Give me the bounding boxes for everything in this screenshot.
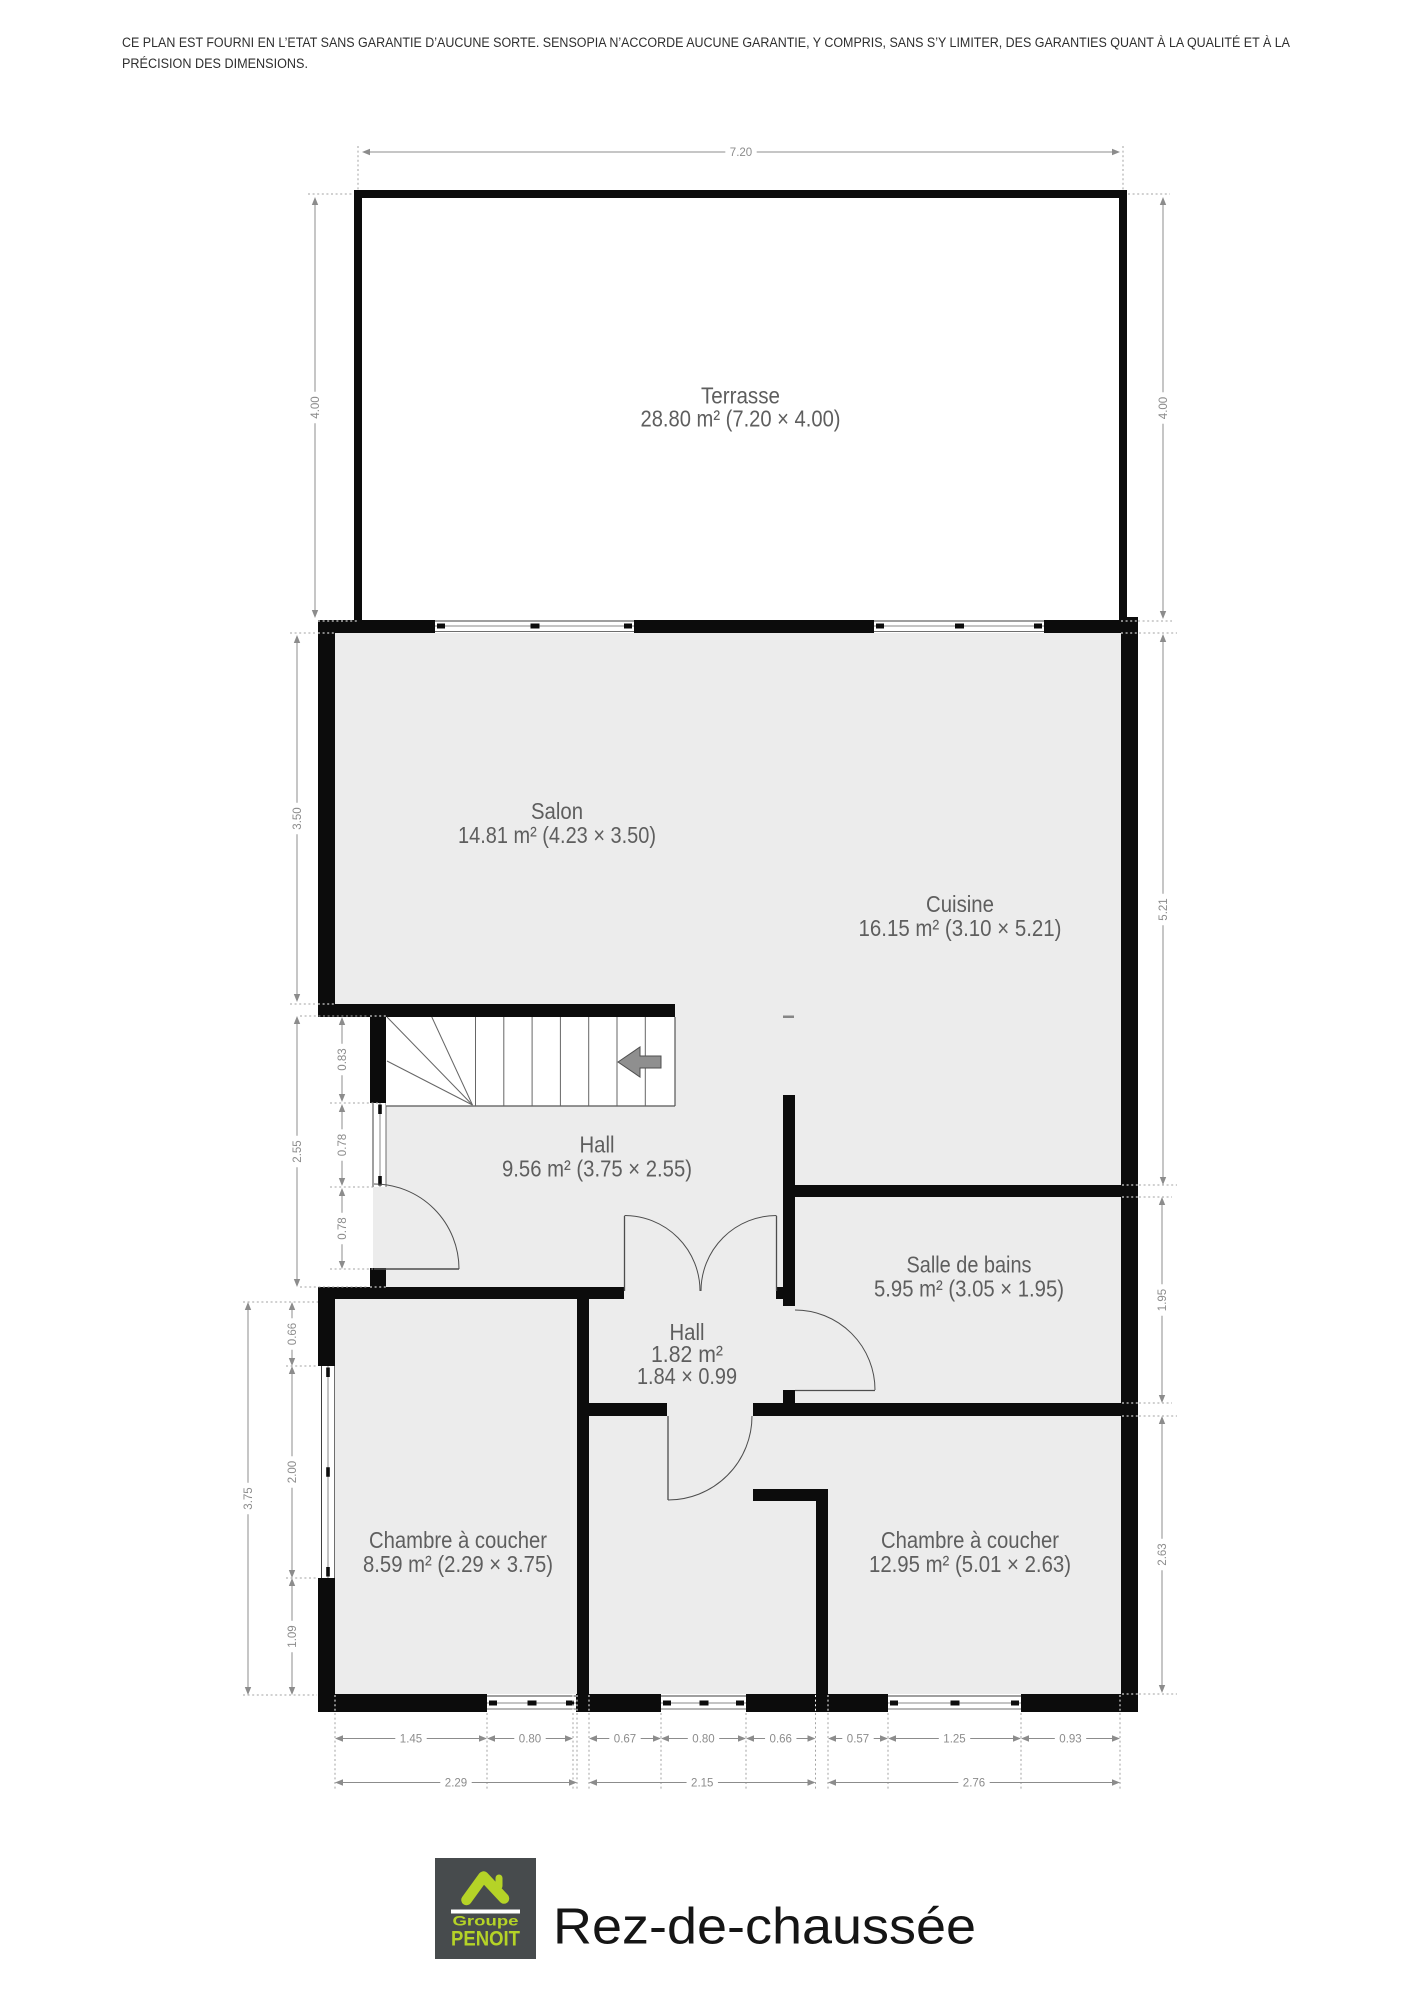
svg-text:4.00: 4.00 xyxy=(1158,397,1170,419)
svg-text:0.67: 0.67 xyxy=(614,1734,636,1746)
svg-text:Salle de bains: Salle de bains xyxy=(907,1252,1032,1278)
svg-text:8.59 m² (2.29 × 3.75): 8.59 m² (2.29 × 3.75) xyxy=(363,1551,553,1577)
svg-text:Rez-de-chaussée: Rez-de-chaussée xyxy=(553,1898,976,1955)
svg-text:7.20: 7.20 xyxy=(730,147,752,159)
svg-text:5.21: 5.21 xyxy=(1158,898,1170,920)
svg-text:2.15: 2.15 xyxy=(691,1778,713,1790)
svg-text:PRÉCISION DES DIMENSIONS.: PRÉCISION DES DIMENSIONS. xyxy=(122,56,308,71)
svg-text:2.76: 2.76 xyxy=(963,1778,985,1790)
svg-text:1.25: 1.25 xyxy=(943,1734,965,1746)
svg-text:0.66: 0.66 xyxy=(770,1734,792,1746)
svg-text:1.09: 1.09 xyxy=(287,1625,299,1647)
svg-text:0.78: 0.78 xyxy=(337,1134,349,1156)
svg-text:2.55: 2.55 xyxy=(292,1140,304,1162)
svg-text:0.57: 0.57 xyxy=(847,1734,869,1746)
svg-text:1.95: 1.95 xyxy=(1157,1289,1169,1311)
svg-text:CE PLAN EST FOURNI EN L’ETAT S: CE PLAN EST FOURNI EN L’ETAT SANS GARANT… xyxy=(122,35,1290,50)
svg-text:0.93: 0.93 xyxy=(1059,1734,1081,1746)
svg-text:1.45: 1.45 xyxy=(400,1734,422,1746)
svg-text:Chambre à coucher: Chambre à coucher xyxy=(369,1527,547,1553)
svg-text:Chambre à coucher: Chambre à coucher xyxy=(881,1527,1059,1553)
svg-text:0.78: 0.78 xyxy=(337,1217,349,1239)
svg-text:PENOIT: PENOIT xyxy=(451,1928,520,1951)
svg-text:0.80: 0.80 xyxy=(692,1734,714,1746)
svg-text:Hall: Hall xyxy=(580,1132,615,1158)
svg-text:4.00: 4.00 xyxy=(310,396,322,418)
svg-text:2.00: 2.00 xyxy=(287,1461,299,1483)
svg-text:Cuisine: Cuisine xyxy=(926,891,994,917)
svg-text:5.95 m² (3.05 × 1.95): 5.95 m² (3.05 × 1.95) xyxy=(874,1276,1064,1302)
svg-text:2.63: 2.63 xyxy=(1157,1543,1169,1565)
svg-text:14.81 m² (4.23 × 3.50): 14.81 m² (4.23 × 3.50) xyxy=(458,822,656,848)
svg-text:0.83: 0.83 xyxy=(337,1048,349,1070)
svg-text:16.15 m² (3.10 × 5.21): 16.15 m² (3.10 × 5.21) xyxy=(859,915,1062,941)
svg-text:2.29: 2.29 xyxy=(445,1778,467,1790)
svg-text:28.80 m² (7.20 × 4.00): 28.80 m² (7.20 × 4.00) xyxy=(641,406,841,432)
svg-text:Salon: Salon xyxy=(531,798,583,824)
svg-text:3.50: 3.50 xyxy=(292,807,304,829)
svg-text:Groupe: Groupe xyxy=(453,1914,520,1929)
svg-text:9.56 m² (3.75 × 2.55): 9.56 m² (3.75 × 2.55) xyxy=(502,1156,692,1182)
svg-text:3.75: 3.75 xyxy=(243,1487,255,1509)
svg-text:0.66: 0.66 xyxy=(287,1323,299,1345)
svg-text:1.84 × 0.99: 1.84 × 0.99 xyxy=(637,1363,737,1389)
svg-text:12.95 m² (5.01 × 2.63): 12.95 m² (5.01 × 2.63) xyxy=(869,1551,1071,1577)
svg-text:0.80: 0.80 xyxy=(519,1734,541,1746)
